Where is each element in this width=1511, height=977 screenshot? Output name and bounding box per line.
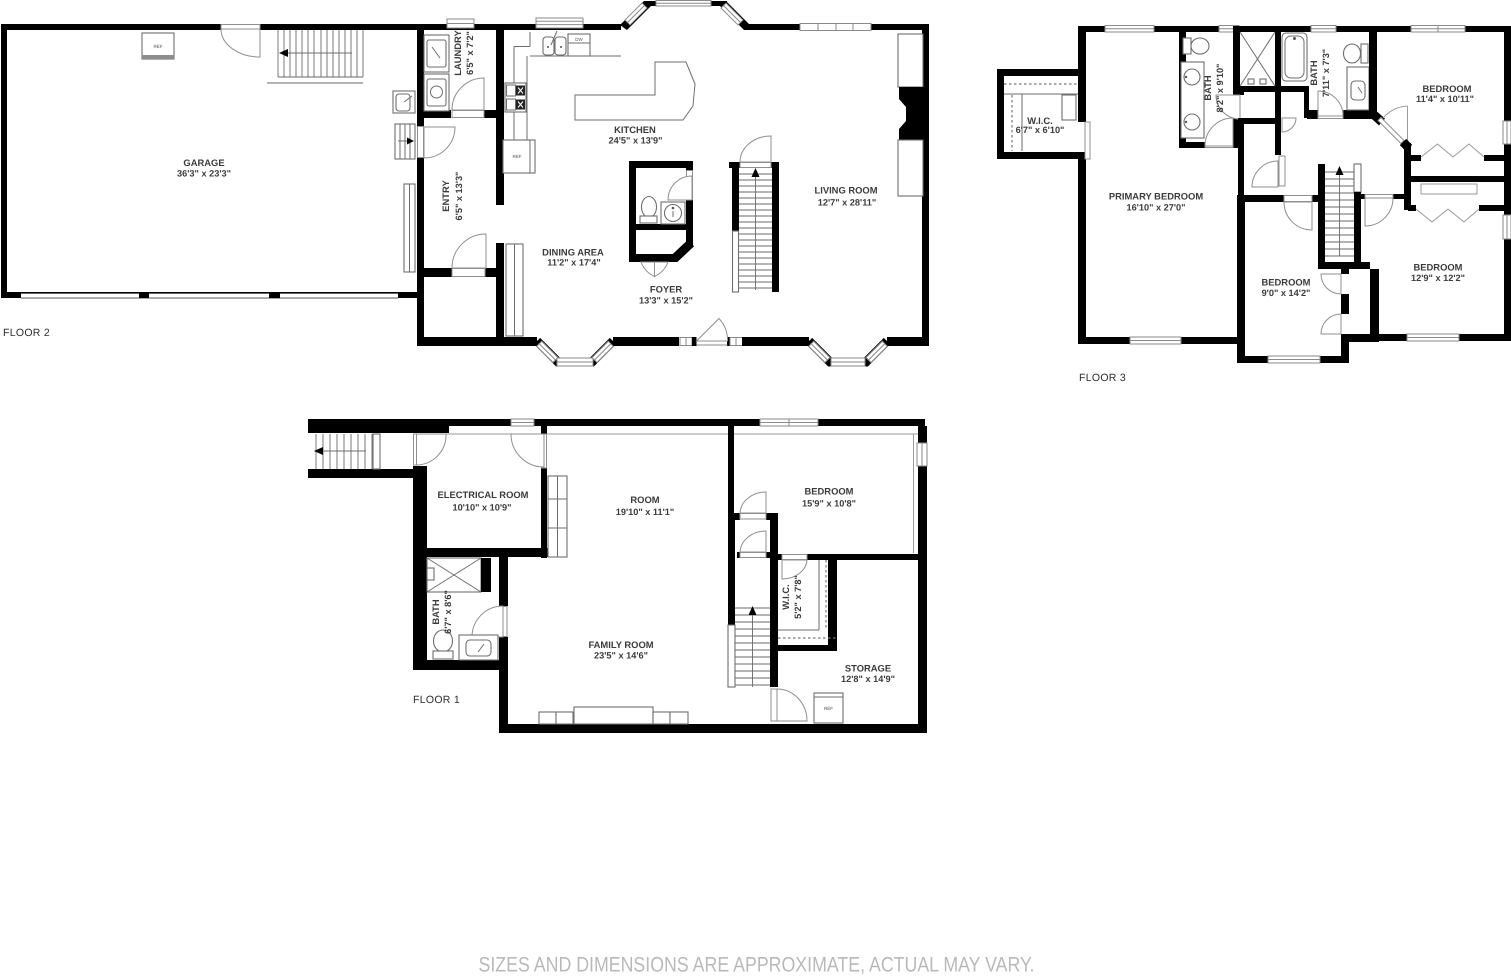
- svg-text:36'3" x 23'3": 36'3" x 23'3": [177, 169, 231, 179]
- svg-text:7'11" x 7'3": 7'11" x 7'3": [1321, 49, 1331, 97]
- svg-text:LIVING ROOM: LIVING ROOM: [814, 185, 877, 196]
- svg-text:ROOM: ROOM: [630, 494, 659, 505]
- svg-text:13'3" x 15'2": 13'3" x 15'2": [639, 296, 693, 306]
- svg-text:FLOOR 3: FLOOR 3: [1079, 372, 1126, 384]
- svg-text:BATH: BATH: [1308, 60, 1319, 86]
- svg-text:LAUNDRY: LAUNDRY: [452, 30, 463, 76]
- svg-text:15'9" x 10'8": 15'9" x 10'8": [802, 499, 856, 509]
- svg-text:6'5" x 13'3": 6'5" x 13'3": [454, 172, 464, 221]
- svg-text:BATH: BATH: [1202, 75, 1213, 101]
- svg-text:6'5" x 7'2": 6'5" x 7'2": [465, 31, 475, 75]
- svg-text:24'5" x 13'9": 24'5" x 13'9": [609, 136, 663, 146]
- svg-text:W.I.C.: W.I.C.: [780, 584, 791, 610]
- svg-text:FLOOR 2: FLOOR 2: [3, 327, 50, 339]
- svg-text:BEDROOM: BEDROOM: [1414, 262, 1463, 273]
- svg-text:FAMILY ROOM: FAMILY ROOM: [588, 639, 653, 650]
- svg-text:STORAGE: STORAGE: [845, 663, 891, 674]
- svg-text:GARAGE: GARAGE: [183, 157, 224, 168]
- svg-text:FOYER: FOYER: [650, 284, 683, 295]
- svg-text:19'10" x 11'1": 19'10" x 11'1": [616, 507, 675, 517]
- svg-text:10'10" x 10'9": 10'10" x 10'9": [452, 503, 511, 513]
- svg-text:5'2" x 7'8": 5'2" x 7'8": [793, 575, 803, 619]
- svg-text:11'4" x 10'11": 11'4" x 10'11": [1416, 94, 1474, 104]
- svg-text:PRIMARY BEDROOM: PRIMARY BEDROOM: [1109, 191, 1203, 202]
- svg-text:DW: DW: [575, 37, 583, 42]
- svg-text:16'10" x 27'0": 16'10" x 27'0": [1126, 203, 1185, 213]
- svg-text:9'0" x 14'2": 9'0" x 14'2": [1262, 288, 1311, 298]
- svg-text:KITCHEN: KITCHEN: [614, 124, 656, 135]
- svg-text:REF: REF: [154, 44, 163, 49]
- svg-text:11'2" x 17'4": 11'2" x 17'4": [547, 258, 600, 268]
- svg-text:REF: REF: [513, 154, 522, 159]
- svg-text:BEDROOM: BEDROOM: [1262, 277, 1311, 288]
- svg-text:BEDROOM: BEDROOM: [805, 486, 854, 497]
- svg-text:BATH: BATH: [430, 599, 441, 625]
- svg-text:REF: REF: [824, 706, 833, 711]
- svg-text:6'7" x 6'10": 6'7" x 6'10": [1016, 125, 1065, 135]
- svg-text:SIZES AND DIMENSIONS ARE APPRO: SIZES AND DIMENSIONS ARE APPROXIMATE, AC…: [479, 954, 1035, 977]
- svg-text:12'8" x 14'9": 12'8" x 14'9": [841, 674, 895, 684]
- svg-text:BEDROOM: BEDROOM: [1423, 83, 1472, 94]
- svg-text:12'7" x 28'11": 12'7" x 28'11": [818, 198, 877, 208]
- svg-text:ELECTRICAL ROOM: ELECTRICAL ROOM: [438, 489, 529, 500]
- svg-text:DINING AREA: DINING AREA: [542, 247, 604, 258]
- svg-text:12'9" x 12'2": 12'9" x 12'2": [1411, 273, 1465, 283]
- svg-text:ENTRY: ENTRY: [440, 180, 451, 212]
- svg-text:8'2" x 9'10": 8'2" x 9'10": [1215, 64, 1225, 113]
- svg-text:FLOOR 1: FLOOR 1: [413, 694, 460, 706]
- svg-text:6'7" x 8'6": 6'7" x 8'6": [443, 590, 453, 634]
- svg-text:23'5" x 14'6": 23'5" x 14'6": [594, 651, 648, 661]
